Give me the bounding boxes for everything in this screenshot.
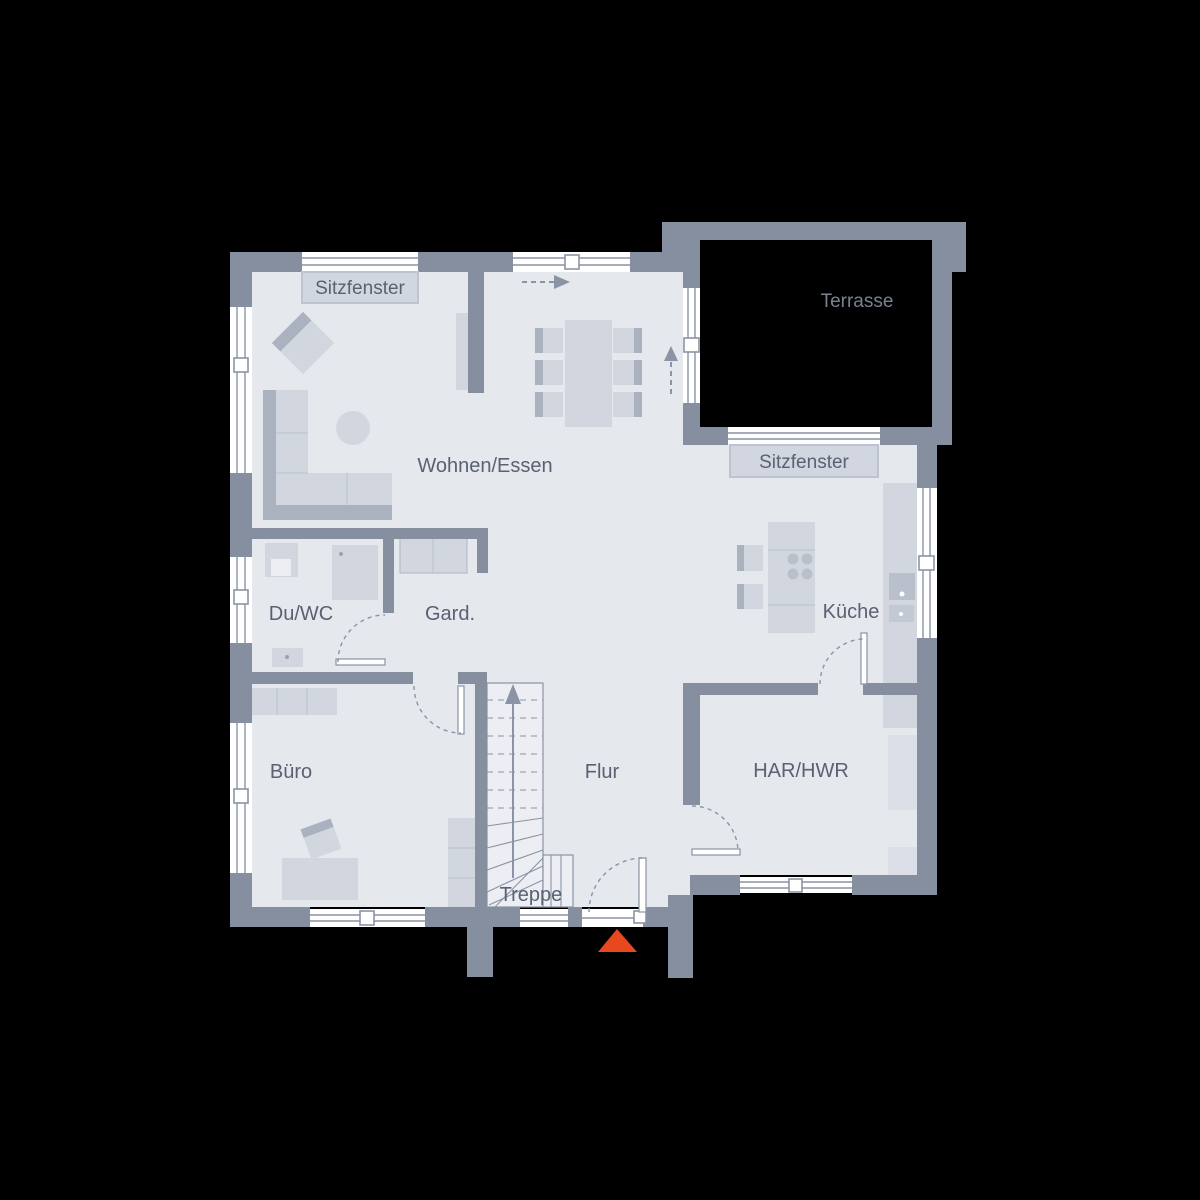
window-sitzfenster-kueche bbox=[728, 427, 880, 445]
utility-cabinet bbox=[888, 735, 917, 810]
window-kueche-right bbox=[917, 488, 937, 638]
wall-stub bbox=[467, 927, 493, 977]
room-label-flur: Flur bbox=[585, 761, 620, 783]
dining-chair bbox=[543, 360, 563, 385]
wall-terrace-pillar bbox=[932, 222, 966, 272]
window-left-buero bbox=[230, 723, 252, 873]
wall-bottom bbox=[568, 907, 582, 927]
dining-chair bbox=[613, 360, 634, 385]
window-handle-icon bbox=[234, 590, 248, 604]
window-handle-icon bbox=[789, 879, 802, 892]
cooktop-burner bbox=[802, 554, 813, 565]
wall-interior bbox=[683, 683, 700, 805]
cooktop-burner bbox=[788, 554, 799, 565]
wall bbox=[852, 875, 937, 895]
wardrobe bbox=[400, 537, 467, 573]
sofa-seat-vertical bbox=[276, 390, 308, 505]
room-label-du-wc: Du/WC bbox=[269, 603, 333, 625]
window-buero-bottom bbox=[310, 909, 425, 927]
window-left-living bbox=[230, 307, 252, 473]
wall-terrace-right bbox=[932, 272, 952, 445]
wall-bottom bbox=[230, 907, 310, 927]
window-handle-icon bbox=[634, 911, 646, 923]
room-label-treppe: Treppe bbox=[500, 884, 563, 906]
wall bbox=[418, 252, 513, 272]
wall-interior bbox=[700, 683, 818, 695]
wall bbox=[683, 272, 700, 288]
wall bbox=[683, 427, 728, 445]
window-har bbox=[740, 877, 852, 893]
office-sideboard bbox=[252, 688, 337, 715]
window-handle-icon bbox=[360, 911, 374, 925]
office-cabinet bbox=[448, 818, 478, 910]
coffee-table bbox=[336, 411, 370, 445]
room-label-har-hwr: HAR/HWR bbox=[753, 760, 849, 782]
window-handle-icon bbox=[565, 255, 579, 269]
sideboard bbox=[456, 313, 468, 390]
wall bbox=[662, 222, 700, 272]
wall-bottom bbox=[425, 907, 520, 927]
sitzfenster-kueche-label: Sitzfenster bbox=[759, 452, 849, 473]
wall-interior bbox=[252, 672, 413, 684]
wall bbox=[683, 403, 700, 427]
terrace-floor bbox=[700, 240, 932, 427]
room-label-gard: Gard. bbox=[425, 603, 475, 625]
shower bbox=[332, 545, 378, 600]
dining-chair bbox=[613, 392, 634, 417]
window-handle-icon bbox=[234, 789, 248, 803]
window-left-duwc bbox=[230, 557, 252, 643]
room-label-wohnen-essen: Wohnen/Essen bbox=[417, 455, 552, 477]
window-handle-icon bbox=[234, 358, 248, 372]
room-label-buero: Büro bbox=[270, 761, 312, 783]
floor-plan-canvas: Sitzfenster Sitzfenster Terrasse Wohnen/… bbox=[0, 0, 1200, 1200]
wall-interior bbox=[383, 539, 394, 613]
floor-right-wing bbox=[683, 445, 917, 875]
wall bbox=[230, 252, 302, 272]
wall-interior bbox=[468, 272, 484, 393]
cooktop-burner bbox=[788, 569, 799, 580]
sitzfenster-living-label: Sitzfenster bbox=[315, 278, 405, 299]
sofa-back-bottom bbox=[263, 505, 392, 520]
wall-stub bbox=[668, 895, 693, 978]
dining-table bbox=[565, 320, 612, 427]
sofa-back-left bbox=[263, 390, 276, 520]
dining-chair bbox=[543, 328, 563, 353]
room-label-terrasse: Terrasse bbox=[821, 291, 894, 312]
window-sitzfenster-living bbox=[302, 252, 418, 272]
bar-stool bbox=[744, 545, 763, 571]
floor-plan: Sitzfenster Sitzfenster Terrasse Wohnen/… bbox=[0, 0, 1200, 1200]
entrance-door bbox=[582, 909, 646, 927]
terrace-door bbox=[683, 288, 700, 403]
wall bbox=[880, 427, 952, 445]
dining-chair bbox=[613, 328, 634, 353]
window-handle-icon bbox=[684, 338, 699, 352]
wall-interior bbox=[475, 672, 487, 910]
cooktop-burner bbox=[802, 569, 813, 580]
window-handle-icon bbox=[919, 556, 934, 570]
dining-set bbox=[535, 320, 642, 427]
dining-chair bbox=[543, 392, 563, 417]
bar-stool bbox=[744, 584, 763, 609]
desk bbox=[282, 858, 358, 900]
wall-interior bbox=[252, 528, 488, 539]
wall bbox=[690, 875, 740, 895]
room-label-kueche: Küche bbox=[823, 601, 880, 623]
sofa-seat-horizontal bbox=[308, 473, 392, 505]
wall bbox=[630, 252, 662, 272]
window-top bbox=[513, 252, 630, 272]
wall-interior bbox=[863, 683, 937, 695]
utility-cabinet bbox=[888, 847, 917, 875]
wall-terrace-top bbox=[700, 222, 932, 240]
wall-right bbox=[917, 445, 937, 488]
window-treppe bbox=[520, 909, 568, 927]
wall-interior bbox=[477, 528, 488, 573]
shower-drain bbox=[339, 552, 343, 556]
wall-right bbox=[917, 638, 937, 875]
washbasin-bowl bbox=[271, 559, 291, 576]
